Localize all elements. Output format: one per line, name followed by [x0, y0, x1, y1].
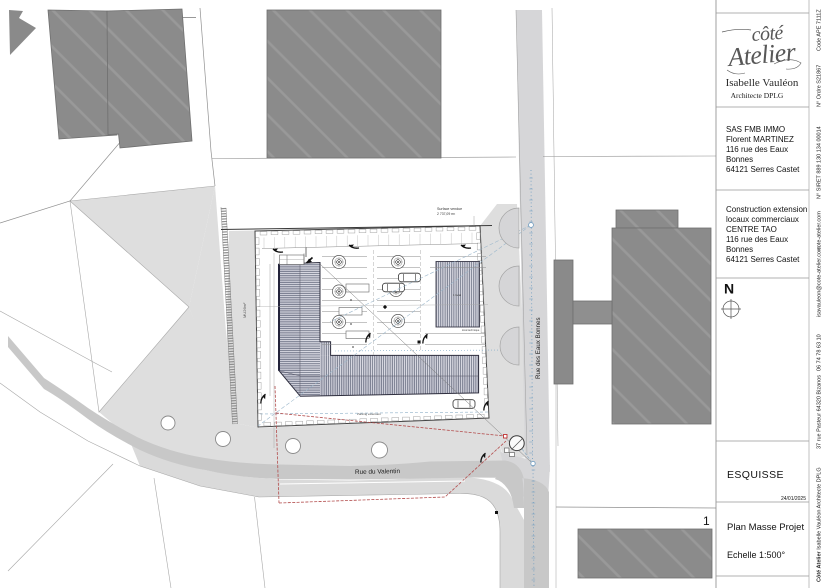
svg-text:cote-atelier.com: cote-atelier.com — [817, 211, 823, 250]
svg-text:isavauleon@cote-atelier.com: isavauleon@cote-atelier.com — [817, 246, 823, 317]
svg-text:N: N — [724, 281, 734, 297]
svg-text:ESQUISSE: ESQUISSE — [727, 469, 784, 481]
svg-text:CENTRE TAO: CENTRE TAO — [726, 225, 777, 234]
svg-text:MU26m²: MU26m² — [242, 302, 247, 318]
svg-text:Parking extension: Parking extension — [357, 412, 381, 416]
svg-text:SAS FMB IMMO: SAS FMB IMMO — [726, 125, 785, 134]
svg-text:Rue du Valentin: Rue du Valentin — [355, 468, 401, 476]
svg-text:1 local: 1 local — [453, 293, 461, 297]
svg-text:Florent MARTINEZ: Florent MARTINEZ — [726, 135, 794, 144]
svg-text:Atelier: Atelier — [725, 37, 798, 72]
svg-text:Isabelle Vauléon: Isabelle Vauléon — [726, 77, 799, 89]
svg-text:Code APE 7111Z: Code APE 7111Z — [817, 9, 823, 51]
svg-text:local technique: local technique — [462, 328, 480, 332]
svg-text:N° SIRET 889 130 134 00014: N° SIRET 889 130 134 00014 — [817, 126, 823, 199]
svg-text:116 rue des Eaux: 116 rue des Eaux — [726, 145, 788, 154]
svg-text:24/01/2025: 24/01/2025 — [781, 496, 806, 502]
svg-text:06 74 78 63 10: 06 74 78 63 10 — [817, 334, 823, 371]
svg-text:64121 Serres Castet: 64121 Serres Castet — [726, 255, 800, 264]
svg-text:Architecte DPLG: Architecte DPLG — [731, 91, 784, 100]
svg-text:Bonnes: Bonnes — [726, 245, 753, 254]
svg-text:Côté Atelier Isabelle Vauléon: Côté Atelier Isabelle Vauléon Architecte… — [817, 467, 823, 582]
svg-text:2 737,09 m²: 2 737,09 m² — [437, 212, 456, 216]
svg-text:Echelle 1:500°: Echelle 1:500° — [727, 550, 786, 560]
svg-text:64121 Serres Castet: 64121 Serres Castet — [726, 165, 800, 174]
svg-text:Construction extension: Construction extension — [726, 205, 807, 214]
svg-text:1: 1 — [703, 514, 710, 528]
svg-text:Surface vendue: Surface vendue — [437, 207, 462, 211]
svg-text:locaux commerciaux: locaux commerciaux — [726, 215, 799, 224]
svg-text:Plan Masse Projet: Plan Masse Projet — [727, 522, 804, 533]
svg-text:N° Ordre S21867: N° Ordre S21867 — [817, 65, 823, 107]
svg-text:Rue des Eaux Bonnes: Rue des Eaux Bonnes — [535, 317, 542, 379]
svg-text:116 rue des Eaux: 116 rue des Eaux — [726, 235, 788, 244]
svg-text:Bonnes: Bonnes — [726, 155, 753, 164]
svg-text:37 rue Pasteur 64320 Bizanos: 37 rue Pasteur 64320 Bizanos — [817, 375, 823, 449]
